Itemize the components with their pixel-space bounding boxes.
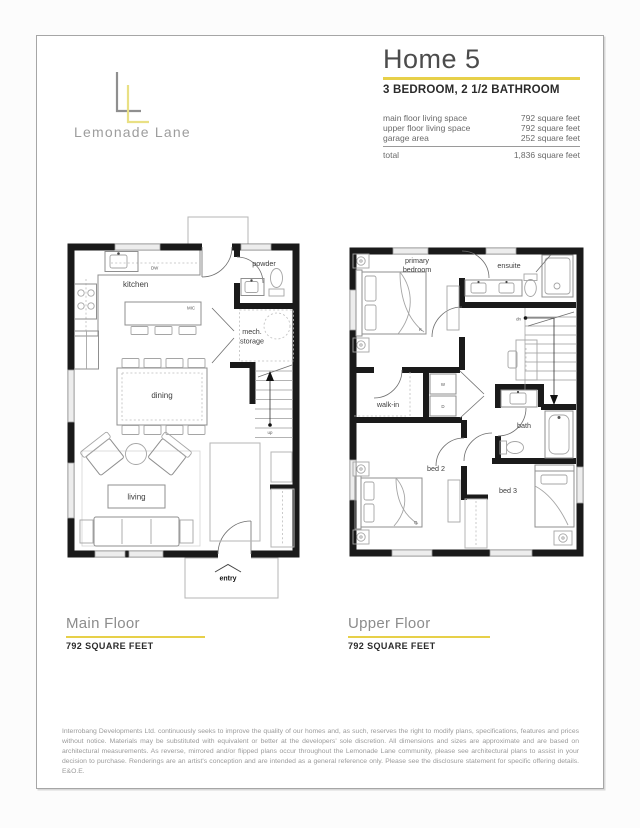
main-floor-title: Main Floor bbox=[66, 615, 140, 632]
pillow bbox=[365, 305, 376, 330]
table-row: upper floor living space 792 square feet bbox=[383, 123, 580, 133]
living-front-window-1 bbox=[95, 551, 125, 557]
bed-headboard bbox=[535, 465, 574, 471]
water-tank bbox=[264, 313, 290, 339]
mech-label-line2: storage bbox=[240, 337, 264, 346]
king-size-label: K bbox=[419, 327, 422, 332]
bedroom-2: bed 2 Q bbox=[353, 462, 460, 544]
bed-headboard bbox=[356, 270, 362, 336]
ensuite-window bbox=[486, 248, 516, 254]
stove bbox=[75, 284, 97, 319]
kitchen-window bbox=[115, 244, 160, 250]
dining-area: dining bbox=[117, 359, 207, 435]
pillow bbox=[364, 482, 374, 500]
main-floor-plan-drawing: kitchen DW MIC powder mech. storage up bbox=[65, 205, 310, 605]
shelf-outline bbox=[271, 452, 292, 482]
dining-label: dining bbox=[151, 391, 172, 400]
table-row: garage area 252 square feet bbox=[383, 133, 580, 143]
dining-chair bbox=[166, 359, 183, 368]
total-value: 1,836 square feet bbox=[514, 150, 580, 160]
walk-in-closet: walk-in bbox=[354, 372, 410, 418]
mech-bifold-door bbox=[212, 338, 234, 363]
toilet bbox=[271, 269, 283, 288]
entry-label: entry bbox=[219, 576, 236, 583]
stat-value: 792 square feet bbox=[521, 113, 580, 123]
garage-outline bbox=[210, 443, 260, 541]
blanket-fold bbox=[394, 478, 405, 526]
dryer-label: D bbox=[441, 404, 444, 409]
primary-side-window bbox=[350, 290, 356, 330]
upper-floor-plan-drawing: K primary bedroom ensuite dn bbox=[348, 230, 590, 560]
upper-floor-area: 792 SQUARE FEET bbox=[348, 641, 436, 651]
dining-chair bbox=[166, 426, 183, 435]
mech-bifold-door bbox=[212, 308, 234, 331]
table-row: main floor living space 792 square feet bbox=[383, 113, 580, 123]
page-title: Home 5 bbox=[383, 44, 481, 75]
entry-door-arc bbox=[218, 521, 251, 554]
main-floor-accent-rule bbox=[66, 636, 205, 638]
mech-storage-room: mech. storage bbox=[240, 310, 294, 361]
dining-chair bbox=[122, 359, 139, 368]
entry-roof-icon bbox=[215, 565, 241, 573]
primary-bedroom: K primary bedroom bbox=[353, 254, 459, 352]
dining-chair bbox=[144, 359, 161, 368]
home-subtitle: 3 BEDROOM, 2 1/2 BATHROOM bbox=[383, 84, 560, 96]
bed2-door-arc bbox=[436, 438, 464, 466]
main-floor-structure bbox=[68, 217, 296, 598]
bedroom-3: bed 3 bbox=[465, 465, 574, 548]
desk bbox=[516, 340, 537, 380]
upper-floor-accent-rule bbox=[348, 636, 490, 638]
up-label: up bbox=[268, 430, 273, 435]
upper-floor-title: Upper Floor bbox=[348, 615, 431, 632]
title-accent-rule bbox=[383, 77, 580, 80]
ensuite-door-arc bbox=[462, 251, 489, 278]
bed2-window bbox=[392, 550, 432, 556]
bed2-bed bbox=[361, 478, 422, 527]
living-area: living bbox=[80, 432, 200, 546]
dining-chair bbox=[188, 426, 205, 435]
stool bbox=[155, 327, 172, 335]
armchair bbox=[146, 432, 192, 477]
bed3-window bbox=[490, 550, 532, 556]
dn-label: dn bbox=[516, 317, 521, 322]
round-table bbox=[126, 444, 147, 465]
dresser bbox=[448, 480, 460, 522]
dining-window bbox=[68, 370, 74, 422]
powder-window bbox=[241, 244, 271, 250]
lemonade-lane-logo-icon bbox=[100, 66, 170, 128]
toilet bbox=[525, 280, 537, 297]
pillow bbox=[364, 504, 374, 522]
walkin-door-arc bbox=[374, 370, 402, 398]
kitchen-label: kitchen bbox=[123, 280, 148, 289]
powder-label: powder bbox=[252, 259, 276, 268]
floorplan-sheet-page: { "logo": { "brand": "Lemonade Lane" }, … bbox=[0, 0, 640, 828]
laundry-bifold-door bbox=[460, 371, 484, 394]
kitchen-area: kitchen DW MIC bbox=[75, 251, 202, 370]
walkin-label: walk-in bbox=[376, 400, 399, 409]
table-total-row: total 1,836 square feet bbox=[383, 146, 580, 160]
stat-value: 252 square feet bbox=[521, 133, 580, 143]
bed2-label: bed 2 bbox=[427, 464, 445, 473]
stool bbox=[179, 327, 196, 335]
primary-label-line1: primary bbox=[405, 256, 429, 265]
ensuite-bathroom: ensuite bbox=[465, 255, 573, 298]
living-side-window bbox=[68, 463, 74, 518]
nightstand bbox=[554, 531, 572, 545]
blanket-fold bbox=[535, 486, 568, 525]
toilet-tank bbox=[269, 289, 284, 296]
brand-name: Lemonade Lane bbox=[74, 124, 191, 140]
primary-window bbox=[393, 248, 428, 254]
mech-label-line1: mech. bbox=[242, 327, 262, 336]
stat-label: upper floor living space bbox=[383, 123, 470, 133]
stat-value: 792 square feet bbox=[521, 123, 580, 133]
microwave-label: MIC bbox=[187, 306, 195, 311]
pillow bbox=[365, 276, 376, 301]
total-label: total bbox=[383, 150, 399, 160]
bath-label: bath bbox=[517, 421, 531, 430]
ensuite-label: ensuite bbox=[497, 261, 520, 270]
queen-size-label: Q bbox=[414, 520, 418, 525]
laundry-bifold-door bbox=[460, 396, 484, 418]
living-front-window-2 bbox=[129, 551, 163, 557]
entry-garage-area: entry bbox=[210, 443, 294, 583]
dining-chair bbox=[144, 426, 161, 435]
stairs-up-arrow bbox=[266, 371, 274, 381]
pillow bbox=[541, 475, 567, 484]
stairs-down-arrow bbox=[550, 395, 558, 405]
main-stairs: up bbox=[255, 365, 293, 438]
stat-label: main floor living space bbox=[383, 113, 467, 123]
armchair bbox=[80, 432, 126, 477]
perimeter-wall bbox=[71, 247, 296, 554]
dining-chair bbox=[188, 359, 205, 368]
bed3-door-arc bbox=[464, 433, 492, 461]
dishwasher-label: DW bbox=[151, 266, 159, 271]
double-vanity bbox=[465, 280, 522, 296]
laundry-closet: W D bbox=[430, 371, 484, 418]
shower bbox=[542, 255, 573, 297]
bed3-side-window bbox=[577, 467, 583, 503]
bathroom: bath bbox=[500, 390, 573, 458]
stool bbox=[131, 327, 148, 335]
legal-disclaimer: Interrobang Developments Ltd. continuous… bbox=[62, 727, 579, 777]
bed3-label: bed 3 bbox=[499, 486, 517, 495]
toilet bbox=[507, 442, 524, 454]
washer-label: W bbox=[441, 382, 446, 387]
sofa bbox=[94, 517, 179, 546]
stat-label: garage area bbox=[383, 133, 429, 143]
side-table bbox=[180, 520, 193, 543]
living-label: living bbox=[127, 493, 145, 502]
dining-chair bbox=[122, 426, 139, 435]
primary-label-line2: bedroom bbox=[403, 265, 431, 274]
bath-vanity bbox=[501, 390, 537, 407]
main-floor-area: 792 SQUARE FEET bbox=[66, 641, 154, 651]
area-stats-table: main floor living space 792 square feet … bbox=[383, 113, 580, 160]
